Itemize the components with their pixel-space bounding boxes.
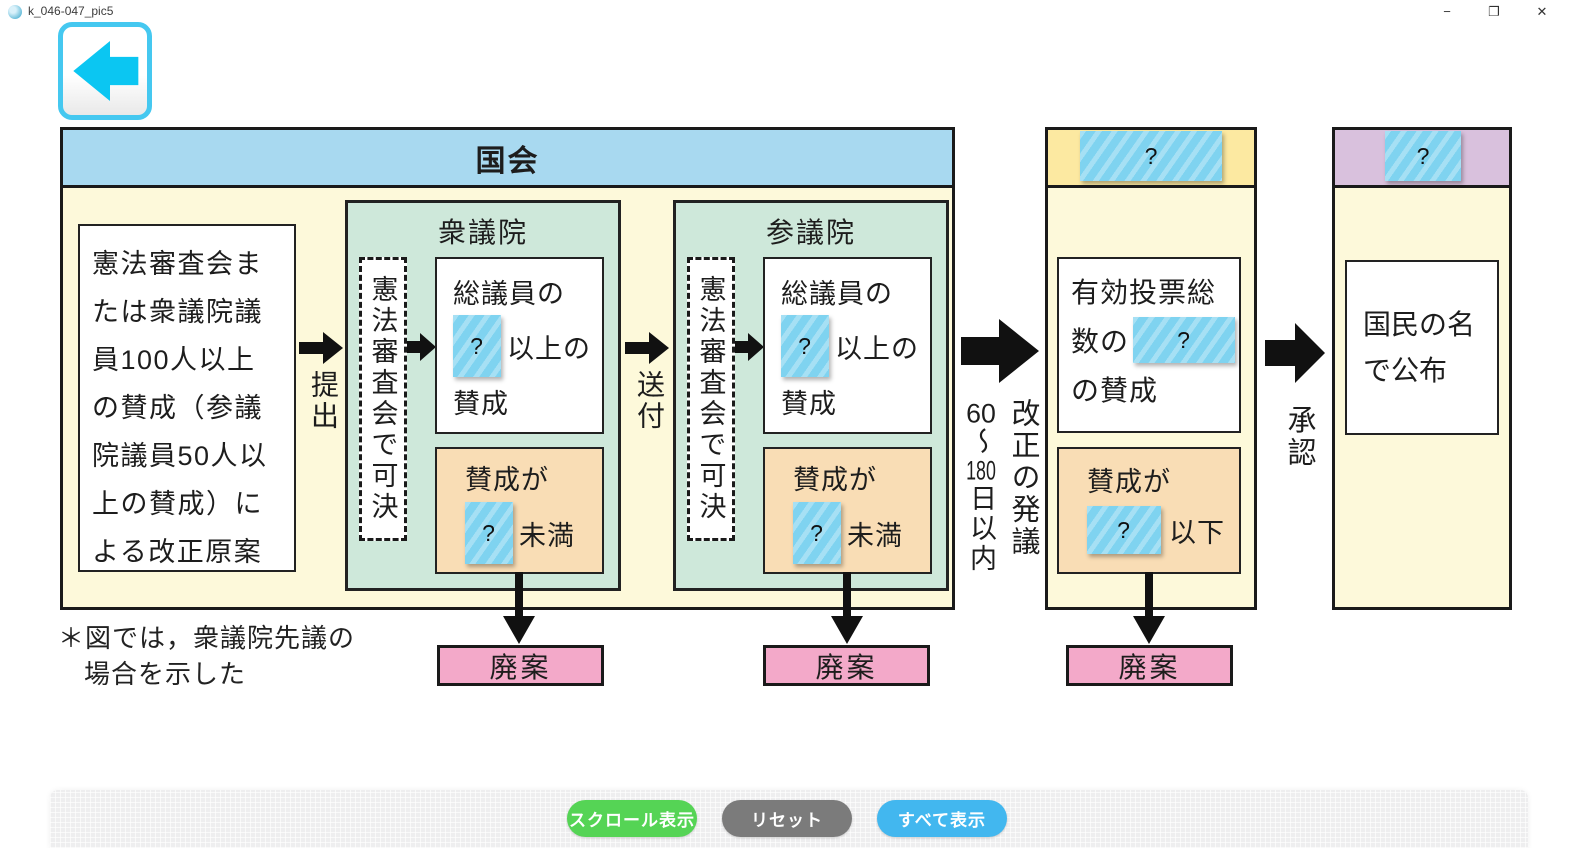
answer-sticker[interactable]: ? (1133, 317, 1235, 363)
back-arrow-icon (70, 34, 140, 108)
restore-button[interactable]: ❐ (1471, 0, 1517, 24)
reset-button[interactable]: リセット (722, 800, 852, 837)
mini-arrow-icon (735, 332, 765, 362)
vote-box-councillors: 総議員の ? 以上の 賛成 (763, 257, 932, 434)
minimize-button[interactable]: − (1424, 0, 1470, 24)
diet-header: 国会 (63, 130, 952, 188)
footnote: ＊図では，衆議院先議の 場合を示した (58, 620, 355, 692)
answer-sticker[interactable]: ? (1385, 131, 1461, 181)
approval-label: 承認 (1278, 405, 1320, 469)
vote-box-representatives: 総議員の ? 以上の 賛成 (435, 257, 604, 434)
discard-box-representatives: 廃案 (437, 645, 604, 686)
window-titlebar: k_046-047_pic5 − ❐ ✕ (0, 0, 1580, 24)
submit-label: 提出 (303, 370, 343, 432)
bottom-toolbar: スクロール表示 リセット すべて表示 (50, 790, 1528, 848)
initiate-arrow-icon (961, 312, 1041, 390)
back-button[interactable] (58, 22, 152, 120)
submit-arrow-icon (299, 329, 345, 367)
scroll-display-button[interactable]: スクロール表示 (567, 800, 697, 837)
house-representatives-title: 衆議院 (348, 211, 618, 251)
referendum-vote-box: 有効投票総 数の ? の賛成 (1057, 257, 1241, 433)
committee-box-councillors: 憲法審査会で可決 (687, 257, 735, 541)
approval-arrow-icon (1265, 317, 1327, 389)
referendum-discard-box: 廃案 (1066, 645, 1233, 686)
app-icon (8, 5, 22, 19)
house-councillors-title: 参議院 (676, 211, 946, 251)
days-limit-label: 60〜180日以内 (962, 400, 1001, 574)
down-arrow-icon (829, 572, 865, 646)
answer-sticker[interactable]: ? (781, 315, 829, 377)
fail-box-representatives: 賛成が ? 未満 (435, 447, 604, 574)
down-arrow-icon (1131, 572, 1167, 646)
show-all-button[interactable]: すべて表示 (877, 800, 1007, 837)
answer-sticker[interactable]: ? (1080, 131, 1222, 181)
close-button[interactable]: ✕ (1519, 0, 1565, 24)
proposal-box: 憲法審査会または衆議院議員100人以上の賛成（参議院議員50人以上の賛成）による… (78, 224, 296, 572)
promulgation-text-box: 国民の名 で公布 (1345, 260, 1499, 435)
answer-sticker[interactable]: ? (453, 315, 501, 377)
answer-sticker[interactable]: ? (1087, 506, 1161, 554)
send-label: 送付 (629, 370, 669, 432)
answer-sticker[interactable]: ? (465, 502, 513, 564)
committee-box-representatives: 憲法審査会で可決 (359, 257, 407, 541)
mini-arrow-icon (407, 332, 437, 362)
down-arrow-icon (501, 572, 537, 646)
fail-box-councillors: 賛成が ? 未満 (763, 447, 932, 574)
answer-sticker[interactable]: ? (793, 502, 841, 564)
app-window: k_046-047_pic5 − ❐ ✕ 国会 憲法審査会または衆議院議員100… (0, 0, 1580, 848)
send-arrow-icon (625, 329, 671, 367)
initiate-label: 改正の発議 (1002, 398, 1044, 558)
discard-box-councillors: 廃案 (763, 645, 930, 686)
referendum-fail-box: 賛成が ? 以下 (1057, 447, 1241, 574)
window-title: k_046-047_pic5 (28, 4, 113, 18)
